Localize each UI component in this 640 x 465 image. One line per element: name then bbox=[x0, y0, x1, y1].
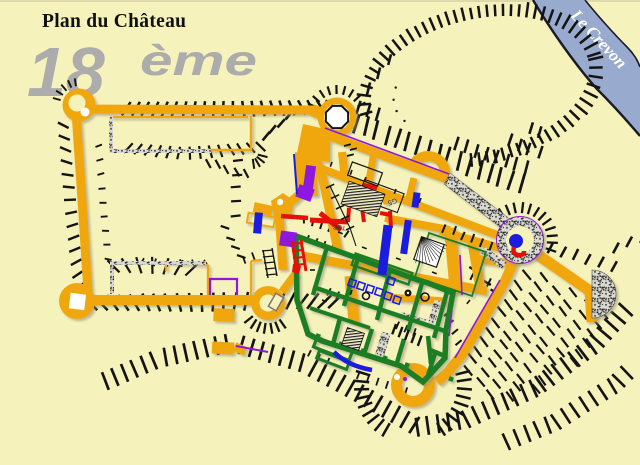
svg-text:TBC: TBC bbox=[332, 223, 346, 231]
svg-text:ème: ème bbox=[140, 36, 257, 84]
svg-text:Plan du Château: Plan du Château bbox=[42, 11, 186, 32]
